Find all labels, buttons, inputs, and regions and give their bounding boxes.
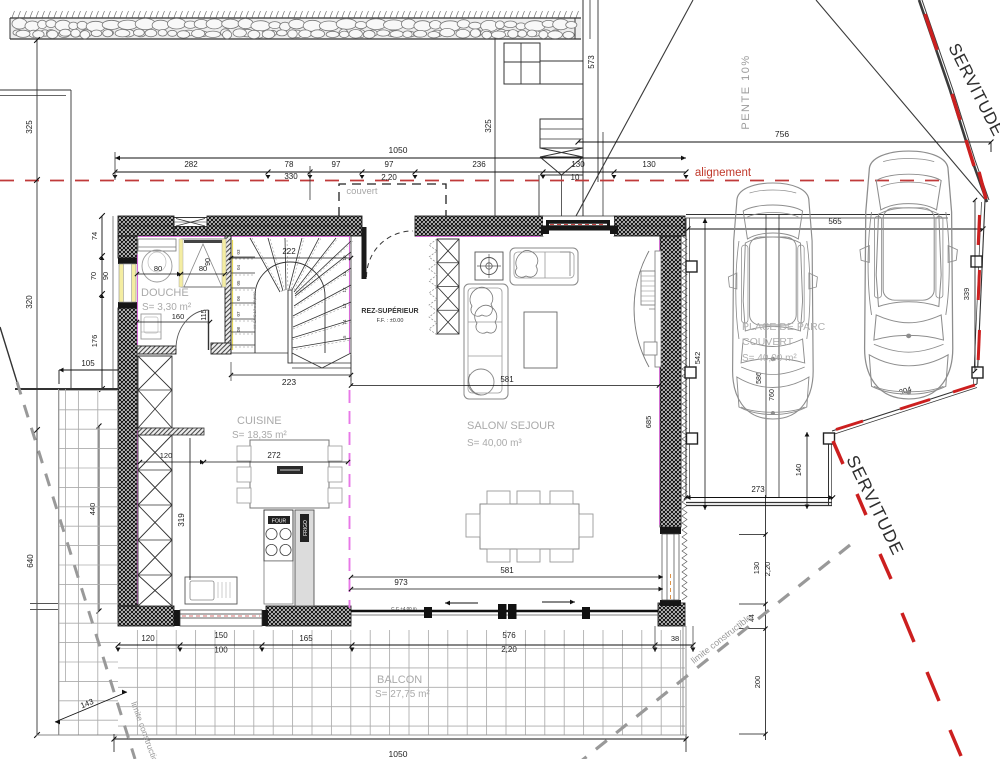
svg-text:FOUR: FOUR [272, 519, 287, 525]
svg-text:06: 06 [236, 296, 241, 302]
svg-text:10: 10 [571, 173, 580, 182]
svg-text:325: 325 [484, 119, 493, 133]
svg-text:03: 03 [236, 249, 241, 255]
svg-text:1050: 1050 [389, 145, 408, 155]
svg-text:160: 160 [172, 312, 185, 321]
svg-text:165: 165 [299, 634, 313, 643]
svg-text:319: 319 [177, 513, 186, 527]
svg-text:236: 236 [472, 160, 486, 169]
svg-text:200: 200 [753, 676, 762, 689]
svg-text:2,20: 2,20 [501, 645, 517, 654]
svg-text:REZ-SUPÉRIEUR: REZ-SUPÉRIEUR [361, 306, 418, 315]
svg-text:PENTE 10%: PENTE 10% [740, 54, 752, 129]
svg-text:272: 272 [267, 451, 281, 460]
svg-text:S= 18,35 m²: S= 18,35 m² [232, 430, 287, 441]
svg-text:581: 581 [500, 375, 514, 384]
svg-text:150: 150 [214, 631, 228, 640]
svg-text:565: 565 [828, 217, 842, 226]
svg-text:120: 120 [141, 634, 155, 643]
svg-text:11: 11 [342, 271, 347, 276]
svg-text:97: 97 [385, 160, 394, 169]
svg-text:100: 100 [214, 646, 228, 655]
svg-text:DOUCHE: DOUCHE [141, 287, 189, 299]
svg-text:130: 130 [752, 562, 761, 575]
svg-text:74: 74 [90, 232, 99, 240]
svg-text:COUVERT: COUVERT [742, 336, 794, 348]
svg-text:440: 440 [88, 503, 97, 516]
svg-text:576: 576 [502, 631, 516, 640]
svg-text:13: 13 [342, 303, 347, 309]
svg-text:14: 14 [342, 319, 347, 325]
svg-text:640: 640 [26, 554, 35, 568]
svg-text:223: 223 [282, 377, 296, 387]
svg-text:80: 80 [154, 264, 162, 273]
svg-text:330: 330 [284, 172, 298, 181]
svg-text:320: 320 [25, 295, 34, 309]
svg-text:F.F. : ±0.00: F.F. : ±0.00 [377, 318, 404, 324]
svg-text:1050: 1050 [389, 749, 408, 759]
svg-text:222: 222 [282, 247, 296, 256]
svg-text:573: 573 [587, 55, 596, 69]
svg-text:S= 27,75 m²: S= 27,75 m² [375, 689, 430, 700]
svg-text:273: 273 [751, 485, 765, 494]
svg-text:CUISINE: CUISINE [237, 415, 282, 427]
svg-text:S= 3,30 m²: S= 3,30 m² [142, 302, 192, 313]
svg-text:SALON/ SEJOUR: SALON/ SEJOUR [467, 420, 555, 432]
svg-text:PLACE DE PARC: PLACE DE PARC [742, 321, 826, 333]
svg-text:12: 12 [342, 287, 347, 293]
svg-text:07: 07 [236, 311, 241, 317]
svg-text:M+ENC 17 x 17,5/29: M+ENC 17 x 17,5/29 [252, 291, 257, 329]
svg-text:130: 130 [642, 160, 656, 169]
svg-text:325: 325 [25, 120, 34, 134]
svg-text:S= 40,00 m³: S= 40,00 m³ [467, 438, 522, 449]
svg-text:140: 140 [794, 464, 803, 477]
svg-text:08: 08 [236, 327, 241, 333]
svg-text:38: 38 [671, 634, 679, 643]
svg-text:04: 04 [236, 265, 241, 271]
svg-text:282: 282 [184, 160, 198, 169]
svg-text:973: 973 [394, 578, 408, 587]
svg-text:2,20: 2,20 [381, 173, 397, 182]
svg-text:78: 78 [285, 160, 294, 169]
svg-text:alignement: alignement [695, 167, 752, 179]
svg-text:97: 97 [332, 160, 341, 169]
svg-text:130: 130 [571, 160, 585, 169]
svg-text:581: 581 [500, 566, 514, 575]
svg-text:BALCON: BALCON [377, 674, 422, 686]
svg-text:C.C +4,00 m: C.C +4,00 m [391, 606, 417, 611]
svg-text:176: 176 [90, 335, 99, 348]
svg-text:05: 05 [236, 280, 241, 286]
svg-text:FRIGO: FRIGO [303, 520, 309, 536]
svg-text:120: 120 [160, 451, 173, 460]
svg-text:542: 542 [693, 352, 702, 365]
svg-text:90: 90 [205, 258, 212, 266]
svg-text:S= 40,00 m²: S= 40,00 m² [742, 353, 797, 364]
svg-text:339: 339 [962, 288, 971, 301]
svg-text:685: 685 [644, 416, 653, 429]
svg-text:15: 15 [342, 335, 347, 341]
svg-text:couvert: couvert [346, 186, 378, 197]
svg-text:760: 760 [769, 389, 776, 401]
svg-text:105: 105 [81, 359, 95, 368]
svg-text:756: 756 [775, 129, 789, 139]
svg-text:70: 70 [89, 272, 98, 280]
svg-text:90: 90 [101, 272, 110, 280]
svg-text:2,20: 2,20 [763, 562, 772, 577]
